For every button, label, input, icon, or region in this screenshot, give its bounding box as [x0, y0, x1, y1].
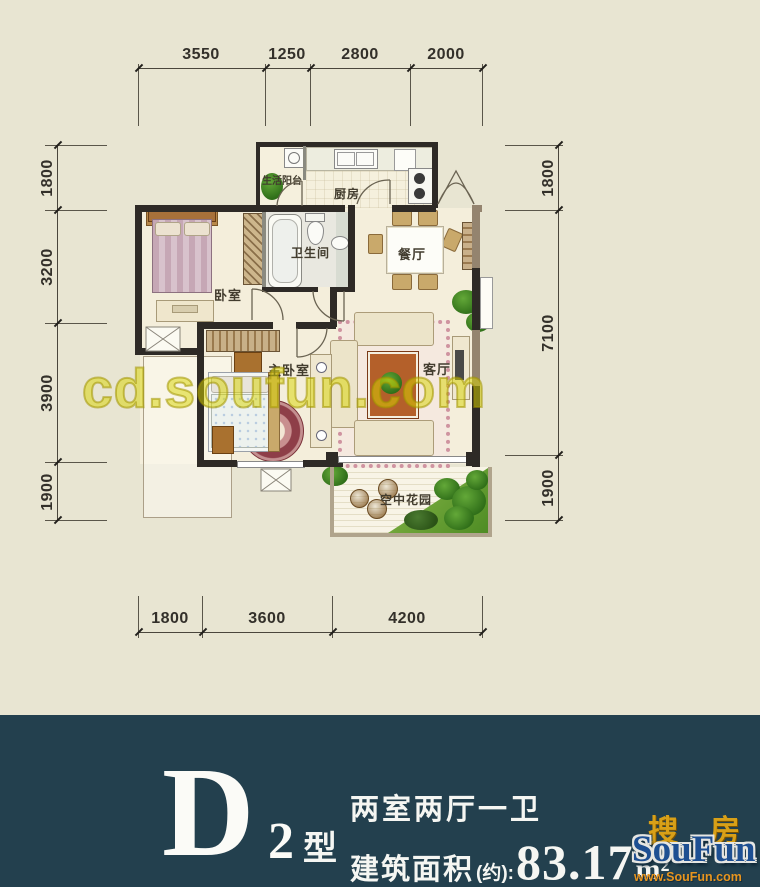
wall [466, 452, 478, 466]
wash-basin [331, 236, 349, 250]
wall [262, 287, 318, 292]
burner [414, 173, 425, 184]
garden-wall [330, 533, 492, 537]
entry-door-arc [438, 183, 474, 204]
dim-ext [138, 64, 139, 126]
window [237, 461, 305, 468]
wall [432, 142, 438, 208]
dining-chair [418, 210, 438, 226]
dim-value: 3900 [39, 363, 57, 423]
wall [392, 205, 436, 212]
flue-x [261, 469, 291, 491]
garden-bush [444, 506, 474, 530]
dim-value: 1250 [257, 46, 317, 64]
wall-left [135, 205, 142, 355]
dim-line [138, 632, 482, 633]
room-label-bathroom: 卫生间 [291, 244, 330, 261]
watermark-text: cd.soufun.com [82, 356, 486, 420]
dim-line [558, 145, 559, 520]
dim-value: 1800 [39, 148, 57, 208]
room-label-sky-garden: 空中花园 [380, 491, 432, 508]
plan-letter: D [162, 748, 254, 876]
room-label-bedroom: 卧室 [214, 285, 242, 304]
wall [256, 142, 436, 147]
dining-chair [368, 234, 383, 254]
dim-value: 1900 [540, 458, 558, 518]
dim-ext [482, 64, 483, 126]
window-sliding [338, 456, 470, 463]
washer-drum [288, 152, 300, 164]
dim-value: 1900 [39, 462, 57, 522]
sofa-bottom [354, 420, 434, 456]
area-label: 建筑面积 [350, 846, 474, 887]
soufun-logo-site: www.SouFun.com [634, 870, 742, 884]
pillow [184, 222, 210, 236]
wall [296, 322, 336, 329]
pillow [155, 222, 181, 236]
wall [197, 322, 273, 329]
flue-box [261, 469, 291, 491]
area-approx: (约): [474, 858, 516, 885]
layout-description: 两室两厅一卫 [350, 796, 542, 825]
dim-ext [505, 145, 563, 146]
garden-bush [322, 466, 348, 486]
wall [265, 205, 345, 212]
dim-value: 2000 [416, 46, 476, 64]
floor-plan-page: 3550 1250 2800 2000 1800 3200 3900 1900 … [0, 0, 760, 887]
master-stool [212, 426, 234, 454]
burner [414, 188, 425, 199]
wall [135, 348, 197, 355]
dining-chair [392, 210, 412, 226]
wall-partition [303, 146, 306, 180]
room-label-dining: 餐厅 [398, 244, 426, 263]
stone-stool [350, 489, 369, 508]
area-value: 83.17 [516, 833, 634, 887]
garden-wall [330, 467, 334, 537]
soufun-logo: 搜房 SouFun www.SouFun.com [628, 800, 760, 887]
dim-ext [505, 455, 563, 456]
wall [348, 205, 355, 290]
garden-rocks [404, 510, 438, 530]
dim-ext [505, 520, 563, 521]
plan-type-suffix: 型 [303, 832, 337, 866]
entry-door-leaves [438, 171, 474, 204]
wall [330, 287, 337, 327]
dim-value: 3600 [237, 610, 297, 628]
area-line: 建筑面积 (约): 83.17 m² [350, 833, 669, 887]
plan-number: 2 [268, 816, 294, 868]
sink-basin [337, 152, 355, 166]
soufun-logo-en: SouFun [632, 828, 755, 871]
room-label-kitchen: 厨房 [334, 185, 360, 202]
bay-window [480, 277, 493, 329]
dim-ext [505, 210, 563, 211]
wall [135, 205, 265, 212]
dim-value: 2800 [330, 46, 390, 64]
dim-value: 3200 [39, 237, 57, 297]
master-wardrobe [206, 330, 280, 352]
sink-basin [356, 152, 374, 166]
wall [197, 460, 237, 467]
wall [472, 268, 480, 330]
dresser-drawer [172, 305, 198, 313]
wall [326, 452, 338, 466]
dim-value: 3550 [171, 46, 231, 64]
dim-value: 7100 [540, 303, 558, 363]
dim-tick [479, 628, 487, 636]
dim-tick [479, 64, 487, 72]
room-label-living-balcony: 生活阳台 [262, 172, 302, 187]
dim-ext [410, 64, 411, 126]
sofa-top [354, 312, 434, 346]
desk-knob [316, 430, 327, 441]
wall-partition [262, 212, 266, 287]
dim-value: 1800 [540, 148, 558, 208]
dining-chair [418, 274, 438, 290]
wall [256, 142, 260, 210]
footer-band: D 2 型 两室两厅一卫 建筑面积 (约): 83.17 m² 搜房 SouFu… [0, 715, 760, 887]
dim-value: 1800 [140, 610, 200, 628]
garden-bush [466, 470, 488, 490]
garden-wall [488, 467, 492, 537]
dim-value: 4200 [377, 610, 437, 628]
dim-ext [265, 64, 266, 126]
dim-ext [310, 64, 311, 126]
dining-chair [392, 274, 412, 290]
